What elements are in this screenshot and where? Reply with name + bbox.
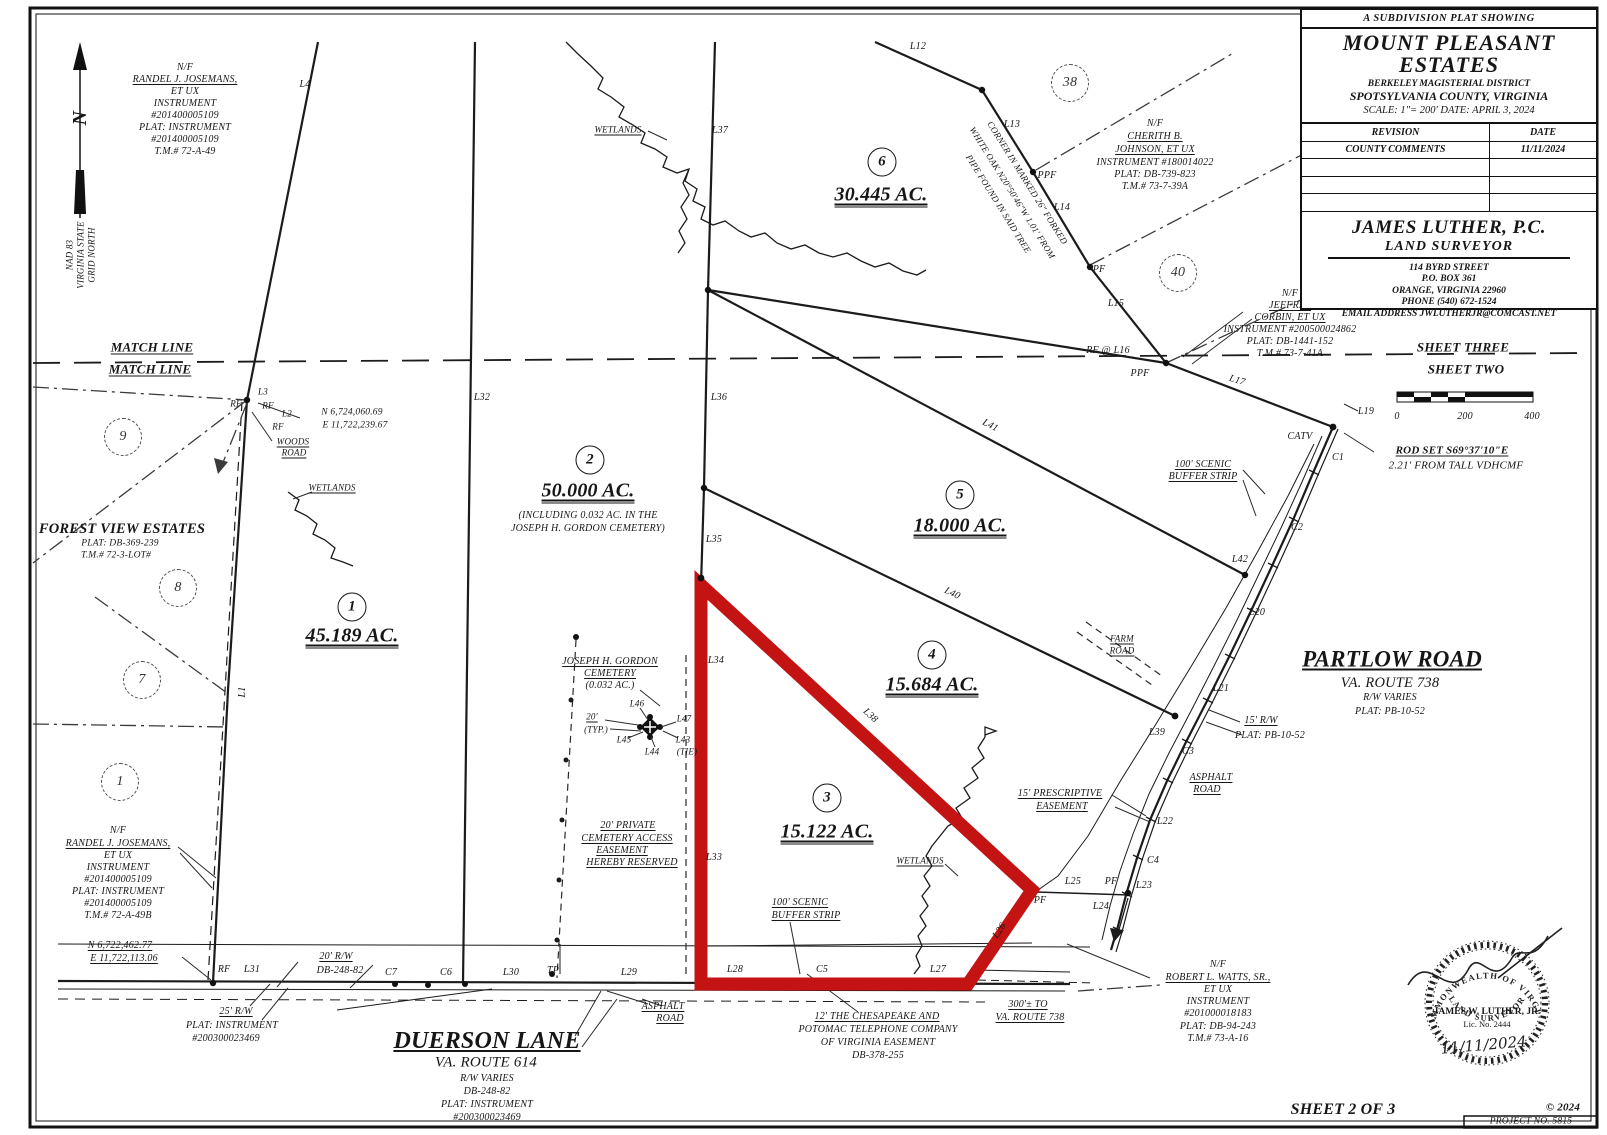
map-label: N/F bbox=[1147, 119, 1163, 129]
revision-date-cell: 11/11/2024 bbox=[1490, 142, 1596, 160]
map-label: VIRGINIA STATE bbox=[77, 221, 86, 288]
sheet-three-label: SHEET THREE bbox=[1417, 341, 1509, 354]
map-label: L12 bbox=[910, 42, 926, 52]
adjoiner-owner-label: CHERITH B. bbox=[1127, 132, 1182, 142]
map-label: WHITE OAK N20°50'46"W 1.01' FROM bbox=[968, 126, 1057, 261]
map-label: #201000018183 bbox=[1184, 1009, 1252, 1019]
cemetery-label: JOSEPH H. GORDON bbox=[562, 657, 658, 667]
map-label: PLAT: PB-10-52 bbox=[1355, 707, 1425, 717]
duerson-lane-label: DUERSON LANE bbox=[393, 1029, 580, 1053]
map-label: PLAT: INSTRUMENT bbox=[72, 887, 164, 897]
map-label: DB-248-82 bbox=[464, 1087, 511, 1097]
map-label: C1 bbox=[1332, 453, 1344, 463]
scenic-buffer-label: 100' SCENIC bbox=[772, 898, 828, 908]
map-label: PF bbox=[1034, 896, 1047, 906]
surveyor-role: LAND SURVEYOR bbox=[1302, 239, 1596, 255]
map-label: L32 bbox=[474, 393, 490, 403]
map-label: N/F bbox=[177, 63, 193, 73]
map-label: VA. ROUTE 614 bbox=[435, 1056, 537, 1071]
plat-kicker: A SUBDIVISION PLAT SHOWING bbox=[1302, 10, 1596, 29]
map-label: ROD SET S69°37'10"E bbox=[1396, 446, 1509, 457]
adjacent-lot-number: 7 bbox=[123, 661, 161, 699]
map-label: L23 bbox=[1136, 881, 1152, 891]
map-label: PPF bbox=[1038, 171, 1057, 181]
map-label: L27 bbox=[930, 965, 946, 975]
map-label: PLAT: DB-739-823 bbox=[1114, 170, 1195, 180]
map-label: ROAD bbox=[656, 1014, 683, 1024]
map-label: OF VIRGINIA EASEMENT bbox=[821, 1038, 935, 1048]
parcel-5-number: 5 bbox=[946, 481, 975, 510]
map-label: L26 bbox=[991, 922, 1008, 941]
north-letter: N bbox=[70, 111, 90, 126]
scale-and-date: SCALE: 1"= 200' DATE: APRIL 3, 2024 bbox=[1302, 105, 1596, 116]
map-label: PLAT: DB-369-239 bbox=[81, 539, 159, 549]
adjoiner-owner-label: RANDEL J. JOSEMANS, bbox=[66, 839, 171, 849]
map-label: PLAT: INSTRUMENT bbox=[139, 123, 231, 133]
map-label: 20' bbox=[586, 713, 598, 722]
scale-tick: 0 bbox=[1394, 412, 1399, 422]
adjacent-lot-number: 9 bbox=[104, 418, 142, 456]
map-label: INSTRUMENT #180014022 bbox=[1096, 158, 1213, 168]
map-label: EASEMENT bbox=[1036, 802, 1088, 812]
map-label: L42 bbox=[1232, 555, 1248, 565]
map-label: JOSEPH H. GORDON CEMETERY) bbox=[511, 524, 665, 534]
map-label: INSTRUMENT #200500024862 bbox=[1224, 325, 1357, 335]
project-number: PROJECT NO. 5815 bbox=[1490, 1117, 1572, 1127]
plat-sheet: COMMONWEALTH OF VIRGINIA LAND SURVEYOR J… bbox=[0, 0, 1607, 1135]
map-label: R/W VARIES bbox=[1363, 693, 1417, 703]
map-label: L37 bbox=[712, 126, 728, 136]
map-label: JOHNSON, ET UX bbox=[1115, 145, 1195, 155]
plat-title: MOUNT PLEASANT ESTATES bbox=[1302, 32, 1596, 77]
partlow-road-label: PARTLOW ROAD bbox=[1302, 648, 1482, 671]
map-label: L3 bbox=[258, 388, 268, 397]
map-label: 15' R/W bbox=[1244, 716, 1277, 726]
map-label: L25 bbox=[1065, 877, 1081, 887]
revision-cell: COUNTY COMMENTS bbox=[1302, 142, 1490, 160]
coordinate-label: N 6,722,462.77 bbox=[88, 941, 152, 951]
map-label: #200300023469 bbox=[192, 1034, 260, 1044]
map-label: E 11,722,113.06 bbox=[90, 954, 158, 964]
map-label: #201400005109 bbox=[84, 875, 152, 885]
adjacent-lot-number: 8 bbox=[159, 569, 197, 607]
map-label: DB-248-82 bbox=[317, 966, 364, 976]
adjacent-lot-number: 1 bbox=[101, 763, 139, 801]
scenic-buffer-label: 100' SCENIC bbox=[1175, 460, 1231, 470]
map-label: PF bbox=[1093, 265, 1106, 275]
adjoiner-owner-label: ROBERT L. WATTS, SR., bbox=[1166, 973, 1271, 983]
map-label: PLAT: INSTRUMENT bbox=[186, 1021, 278, 1031]
surveyor-name: JAMES LUTHER, P.C. bbox=[1302, 217, 1596, 239]
parcel-6-acreage: 30.445 AC. bbox=[835, 185, 928, 208]
surveyor-block: JAMES LUTHER, P.C. LAND SURVEYOR 114 BYR… bbox=[1302, 212, 1596, 321]
adjoiner-owner-label: RANDEL J. JOSEMANS, bbox=[133, 75, 238, 85]
map-label: L40 bbox=[943, 586, 962, 602]
adjacent-lot-number: 38 bbox=[1051, 64, 1089, 102]
map-label: N/F bbox=[1210, 960, 1226, 970]
parcel-1-acreage: 45.189 AC. bbox=[306, 626, 399, 649]
sheet-number: SHEET 2 OF 3 bbox=[1291, 1102, 1396, 1118]
map-label: 20' R/W bbox=[319, 952, 352, 962]
map-label: INSTRUMENT bbox=[154, 99, 217, 109]
map-label: FARM bbox=[1110, 635, 1134, 644]
map-label: L33 bbox=[706, 853, 722, 863]
map-label: L1 bbox=[238, 687, 248, 698]
map-label: R/W VARIES bbox=[460, 1074, 514, 1084]
scale-tick: 200 bbox=[1457, 412, 1473, 422]
county: SPOTSYLVANIA COUNTY, VIRGINIA bbox=[1302, 89, 1596, 104]
map-label: L39 bbox=[1149, 728, 1165, 738]
map-label: L35 bbox=[706, 535, 722, 545]
map-label: T.M.# 72-3-LOT# bbox=[81, 551, 151, 561]
revision-cell bbox=[1302, 159, 1490, 177]
map-label: GRID NORTH bbox=[88, 227, 97, 282]
revision-cell bbox=[1302, 177, 1490, 195]
map-label: VA. ROUTE 738 bbox=[1341, 676, 1440, 691]
map-label: L22 bbox=[1157, 817, 1173, 827]
map-label: EASEMENT bbox=[596, 846, 648, 856]
map-label: BUFFER STRIP bbox=[772, 911, 841, 921]
map-label: CEMETERY ACCESS bbox=[581, 834, 672, 844]
map-label: BUFFER STRIP bbox=[1169, 472, 1238, 482]
map-label: C2 bbox=[1291, 523, 1303, 533]
map-label: ROAD bbox=[1110, 647, 1135, 656]
match-line-label: MATCH LINE bbox=[111, 341, 194, 354]
revision-table: REVISION DATE COUNTY COMMENTS 11/11/2024 bbox=[1302, 124, 1596, 212]
map-label: L4 bbox=[300, 80, 311, 90]
rule bbox=[1328, 257, 1569, 259]
map-label: L21 bbox=[1213, 684, 1229, 694]
map-label: 300'± TO bbox=[1008, 1000, 1047, 1010]
map-label: #200300023469 bbox=[453, 1113, 521, 1123]
map-label: L41 bbox=[981, 418, 1000, 434]
map-label: T.M.# 72-A-49 bbox=[154, 147, 215, 157]
map-label: ROAD bbox=[282, 449, 307, 458]
map-label: L24 bbox=[1093, 902, 1109, 912]
map-label: RF bbox=[272, 423, 283, 432]
map-label: ASPHALT bbox=[642, 1002, 685, 1012]
map-label: T.M.# 73-A-16 bbox=[1187, 1034, 1248, 1044]
wetlands-label: WETLANDS bbox=[594, 126, 641, 135]
revision-header: REVISION bbox=[1302, 124, 1490, 142]
map-label: L36 bbox=[711, 393, 727, 403]
map-label: E 11,722,239.67 bbox=[322, 421, 387, 431]
map-label: PPF bbox=[1131, 369, 1150, 379]
map-label: PLAT: INSTRUMENT bbox=[441, 1100, 533, 1110]
map-label: ET UX bbox=[104, 851, 132, 861]
map-label: ASPHALT bbox=[1190, 773, 1233, 783]
map-label: INSTRUMENT bbox=[87, 863, 150, 873]
cemetery-easement-note: 20' PRIVATE bbox=[600, 821, 655, 831]
map-label: (0.032 AC.) bbox=[586, 681, 635, 691]
map-label: CEMETERY bbox=[584, 669, 636, 679]
map-label: (TYP.) bbox=[584, 726, 608, 735]
scale-tick: 400 bbox=[1524, 412, 1540, 422]
map-label: PLAT: DB-1441-152 bbox=[1247, 337, 1334, 347]
parcel-2-number: 2 bbox=[576, 446, 605, 475]
map-label: L19 bbox=[1358, 407, 1374, 417]
map-label: T.M.# 73-7-41A bbox=[1257, 349, 1323, 359]
map-label: L38 bbox=[861, 707, 880, 725]
map-label: C5 bbox=[816, 965, 828, 975]
telephone-easement-note: 12' THE CHESAPEAKE AND bbox=[815, 1012, 940, 1022]
map-label: (INCLUDING 0.032 AC. IN THE bbox=[518, 511, 657, 521]
map-label: VA. ROUTE 738 bbox=[996, 1013, 1065, 1023]
map-label: C4 bbox=[1147, 856, 1159, 866]
adjacent-subdivision-label: FOREST VIEW ESTATES bbox=[39, 522, 205, 537]
map-label: T.M.# 72-A-49B bbox=[84, 911, 151, 921]
map-label: T.M.# 73-7-39A bbox=[1122, 182, 1188, 192]
parcel-4-acreage: 15.684 AC. bbox=[886, 675, 979, 698]
map-label: L31 bbox=[244, 965, 260, 975]
map-label: RF bbox=[218, 965, 231, 975]
parcel-1-number: 1 bbox=[338, 593, 367, 622]
map-label: CATV bbox=[1288, 432, 1313, 442]
parcel-2-acreage: 50.000 AC. bbox=[542, 481, 635, 504]
map-label: C6 bbox=[440, 968, 452, 978]
surveyor-address: 114 BYRD STREET P.O. BOX 361 ORANGE, VIR… bbox=[1302, 263, 1596, 321]
map-label: ET UX bbox=[171, 87, 199, 97]
map-label: L15 bbox=[1108, 299, 1124, 309]
map-label: MATCH LINE bbox=[109, 363, 192, 376]
map-label: L14 bbox=[1054, 203, 1070, 213]
map-label: L46 bbox=[630, 700, 645, 709]
map-label: L45 bbox=[617, 736, 632, 745]
map-label: L28 bbox=[727, 965, 743, 975]
map-label: TP bbox=[547, 966, 559, 976]
map-label: ROAD bbox=[1193, 785, 1220, 795]
map-label: L20 bbox=[1249, 608, 1265, 618]
map-label: L13 bbox=[1004, 120, 1020, 130]
wetlands-label: WETLANDS bbox=[308, 484, 355, 493]
map-label: C3 bbox=[1182, 747, 1194, 757]
parcel-3-acreage: 15.122 AC. bbox=[781, 822, 874, 845]
date-header: DATE bbox=[1490, 124, 1596, 142]
map-label: #201400005109 bbox=[151, 111, 219, 121]
map-label: L2 bbox=[282, 410, 292, 419]
copyright: © 2024 bbox=[1546, 1103, 1580, 1114]
map-label: L17 bbox=[1228, 374, 1246, 388]
map-label: L30 bbox=[503, 968, 519, 978]
map-label: (TIE) bbox=[677, 748, 698, 757]
parcel-4-number: 4 bbox=[918, 641, 947, 670]
map-label: L44 bbox=[645, 748, 660, 757]
map-label: HEREBY RESERVED bbox=[586, 858, 677, 868]
map-label: ET UX bbox=[1204, 985, 1232, 995]
parcel-3-number: 3 bbox=[813, 784, 842, 813]
datum-label: NAD 83 bbox=[66, 240, 75, 270]
map-label: POTOMAC TELEPHONE COMPANY bbox=[798, 1025, 957, 1035]
map-label: RF bbox=[230, 400, 241, 409]
wetlands-label: WETLANDS bbox=[896, 857, 943, 866]
map-label: L29 bbox=[621, 968, 637, 978]
map-label: PLAT: PB-10-52 bbox=[1235, 731, 1305, 741]
adjacent-lot-number: 40 bbox=[1159, 254, 1197, 292]
map-label: 2.21' FROM TALL VDHCMF bbox=[1389, 461, 1524, 472]
coordinate-label: N 6,724,060.69 bbox=[321, 408, 382, 418]
map-label: N/F bbox=[110, 826, 126, 836]
prescriptive-easement-label: 15' PRESCRIPTIVE bbox=[1018, 789, 1103, 799]
map-label: C7 bbox=[385, 968, 397, 978]
revision-cell bbox=[1302, 194, 1490, 212]
title-block: A SUBDIVISION PLAT SHOWING MOUNT PLEASAN… bbox=[1300, 8, 1598, 310]
map-label: INSTRUMENT bbox=[1187, 997, 1250, 1007]
map-label: L34 bbox=[708, 656, 724, 666]
map-label: #201400005109 bbox=[84, 899, 152, 909]
map-label: #201400005109 bbox=[151, 135, 219, 145]
map-label: PLAT: DB-94-243 bbox=[1180, 1022, 1256, 1032]
map-label: N/F bbox=[1282, 289, 1298, 299]
district: BERKELEY MAGISTERIAL DISTRICT bbox=[1302, 79, 1596, 89]
map-label: L47 bbox=[677, 715, 692, 724]
map-label: RF bbox=[262, 402, 273, 411]
corner-note: CORNER IN MARKED 26" FORKED bbox=[985, 120, 1069, 246]
map-label: 25' R/W bbox=[219, 1007, 252, 1017]
map-label: RF @ L16 bbox=[1086, 346, 1130, 356]
parcel-5-acreage: 18.000 AC. bbox=[914, 516, 1007, 539]
map-label: PF bbox=[1105, 877, 1118, 887]
parcel-6-number: 6 bbox=[868, 148, 897, 177]
sheet-two-label: SHEET TWO bbox=[1428, 363, 1505, 376]
map-label: L43 bbox=[676, 736, 691, 745]
map-label: DB-378-255 bbox=[852, 1051, 904, 1061]
map-label: WOODS bbox=[277, 438, 310, 447]
